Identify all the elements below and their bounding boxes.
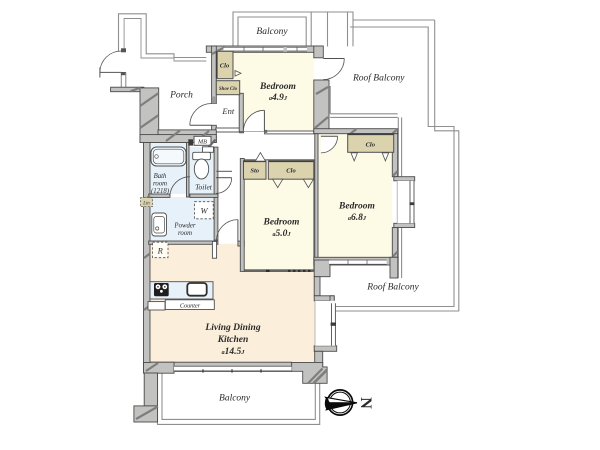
svg-text:Sto: Sto <box>250 168 259 175</box>
svg-text:room: room <box>153 181 167 188</box>
svg-text:room: room <box>178 230 192 237</box>
svg-text:Roof Balcony: Roof Balcony <box>352 73 405 84</box>
svg-text:Lin: Lin <box>142 202 150 207</box>
svg-text:Balcony: Balcony <box>219 394 251 404</box>
svg-text:a14.5J: a14.5J <box>222 347 246 357</box>
svg-text:a4.9J: a4.9J <box>269 93 288 103</box>
svg-text:R: R <box>157 246 164 256</box>
svg-text:Living Dining: Living Dining <box>204 323 260 333</box>
svg-text:Kitchen: Kitchen <box>217 335 249 345</box>
svg-text:a6.8J: a6.8J <box>348 213 367 223</box>
svg-text:N: N <box>357 397 374 409</box>
svg-text:Bedroom: Bedroom <box>259 82 296 92</box>
svg-text:Bedroom: Bedroom <box>263 218 300 228</box>
svg-text:Ent: Ent <box>221 106 234 116</box>
svg-text:Toilet: Toilet <box>195 183 213 192</box>
svg-text:MB: MB <box>197 139 207 146</box>
svg-text:(1218): (1218) <box>151 188 170 195</box>
svg-text:Powder: Powder <box>173 223 195 230</box>
svg-text:Shoe Clo: Shoe Clo <box>219 87 238 92</box>
svg-text:Balcony: Balcony <box>256 27 288 37</box>
svg-text:Clo: Clo <box>220 63 230 70</box>
svg-text:a5.0J: a5.0J <box>272 229 291 239</box>
svg-text:Counter: Counter <box>180 302 201 309</box>
svg-text:Roof Balcony: Roof Balcony <box>366 282 419 293</box>
svg-text:Bedroom: Bedroom <box>338 202 375 212</box>
svg-text:Porch: Porch <box>169 91 193 101</box>
svg-text:Clo: Clo <box>286 168 296 175</box>
svg-text:Bath: Bath <box>154 173 167 180</box>
svg-text:Clo: Clo <box>366 142 376 149</box>
svg-text:W: W <box>200 206 208 216</box>
